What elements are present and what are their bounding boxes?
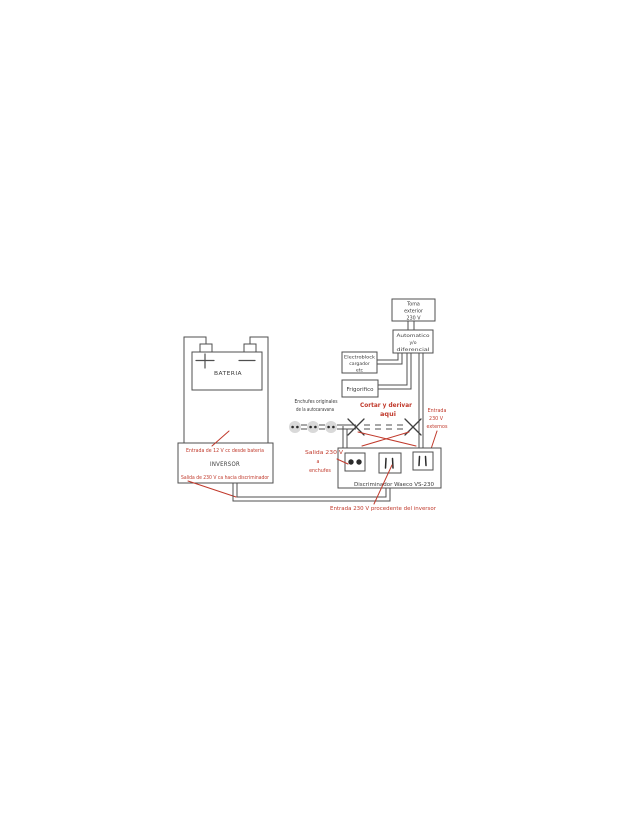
entrada-externa-line2: 230 V <box>429 416 444 422</box>
enchufes-line2: de la autocaravana <box>296 407 334 413</box>
discriminador: Discriminador Waeco VS-230 <box>338 448 441 488</box>
automatico-diferencial: Automatico y/o diferencial <box>393 330 433 353</box>
electroblock-line3: etc <box>356 368 364 374</box>
discriminador-label: Discriminador Waeco VS-230 <box>354 482 434 488</box>
socket-output <box>345 453 365 471</box>
frigorifico: Frigorifico <box>342 380 378 397</box>
automatico-line3: diferencial <box>397 347 430 353</box>
salida-enchufes-line1: Salida 230 V <box>305 450 344 456</box>
socket-plug-icon <box>289 421 301 433</box>
wire-automatico-frigorifico-a <box>378 353 407 385</box>
battery: BATERIA <box>192 344 262 390</box>
socket-plug-icon <box>325 421 337 433</box>
socket-plug-icon <box>307 421 319 433</box>
salida-enchufes-line2: a <box>317 460 320 465</box>
wire-automatico-electroblock-a <box>377 353 398 360</box>
electroblock-line1: Electroblock <box>344 355 375 361</box>
plug-pin <box>309 426 312 429</box>
wire-removed-dashed <box>364 425 406 429</box>
entrada-inversor-note: Entrada 230 V procedente del inversor <box>330 506 436 512</box>
battery-label: BATERIA <box>214 371 242 377</box>
toma-exterior-line3: 230 V <box>407 316 422 322</box>
electroblock-line2: cargador <box>349 361 370 367</box>
wiring-diagram: BATERIA Entrada de 12 V cc desde bateria… <box>0 0 622 817</box>
inversor-input-note: Entrada de 12 V cc desde bateria <box>186 448 264 454</box>
wire-plugs-c <box>337 425 356 429</box>
inversor-output-note: Salida de 230 V ca hacia discriminador <box>181 475 270 481</box>
entrada-externa-line1: Entrada <box>428 408 447 414</box>
salida-enchufes-line3: enchufes <box>309 468 331 474</box>
electroblock: Electroblock cargador etc <box>342 352 377 374</box>
wiring-diagram-page: BATERIA Entrada de 12 V cc desde bateria… <box>0 0 622 817</box>
plug-pin <box>314 426 317 429</box>
battery-terminal-positive <box>200 344 212 352</box>
plug-pin <box>332 426 335 429</box>
automatico-line1: Automatico <box>397 333 430 339</box>
frigorifico-label: Frigorifico <box>347 387 374 393</box>
plug-pin <box>327 426 330 429</box>
inversor: Entrada de 12 V cc desde bateria INVERSO… <box>178 443 273 483</box>
cortar-line1: Cortar y derivar <box>360 401 413 409</box>
pointer-divert-right-cut <box>362 432 409 446</box>
socket-output-pin <box>348 459 353 464</box>
plug-pin <box>296 426 299 429</box>
enchufes-line1: Enchufes originales <box>295 399 338 405</box>
original-sockets <box>289 421 337 433</box>
enchufes-originales-note: Enchufes originales de la autocaravana <box>295 399 338 413</box>
socket-output-pin <box>356 459 361 464</box>
entrada-externa-note: Entrada 230 V externos <box>427 408 448 430</box>
toma-exterior: Toma exterior 230 V <box>392 299 435 322</box>
automatico-line2: y/o <box>409 340 416 346</box>
socket-external-input <box>413 452 433 470</box>
toma-exterior-line1: Toma <box>406 302 420 308</box>
cortar-line2: aqui <box>380 410 396 418</box>
inversor-label: INVERSOR <box>210 461 240 468</box>
battery-terminal-negative <box>244 344 256 352</box>
toma-exterior-line2: exterior <box>404 309 423 315</box>
cortar-derivar-note: Cortar y derivar aqui <box>360 401 413 418</box>
wire-plugs-b <box>319 425 325 429</box>
entrada-externa-line3: externos <box>427 424 448 430</box>
wire-automatico-frigorifico-b <box>378 353 411 389</box>
plug-pin <box>291 426 294 429</box>
wire-plugs-a <box>301 425 307 429</box>
